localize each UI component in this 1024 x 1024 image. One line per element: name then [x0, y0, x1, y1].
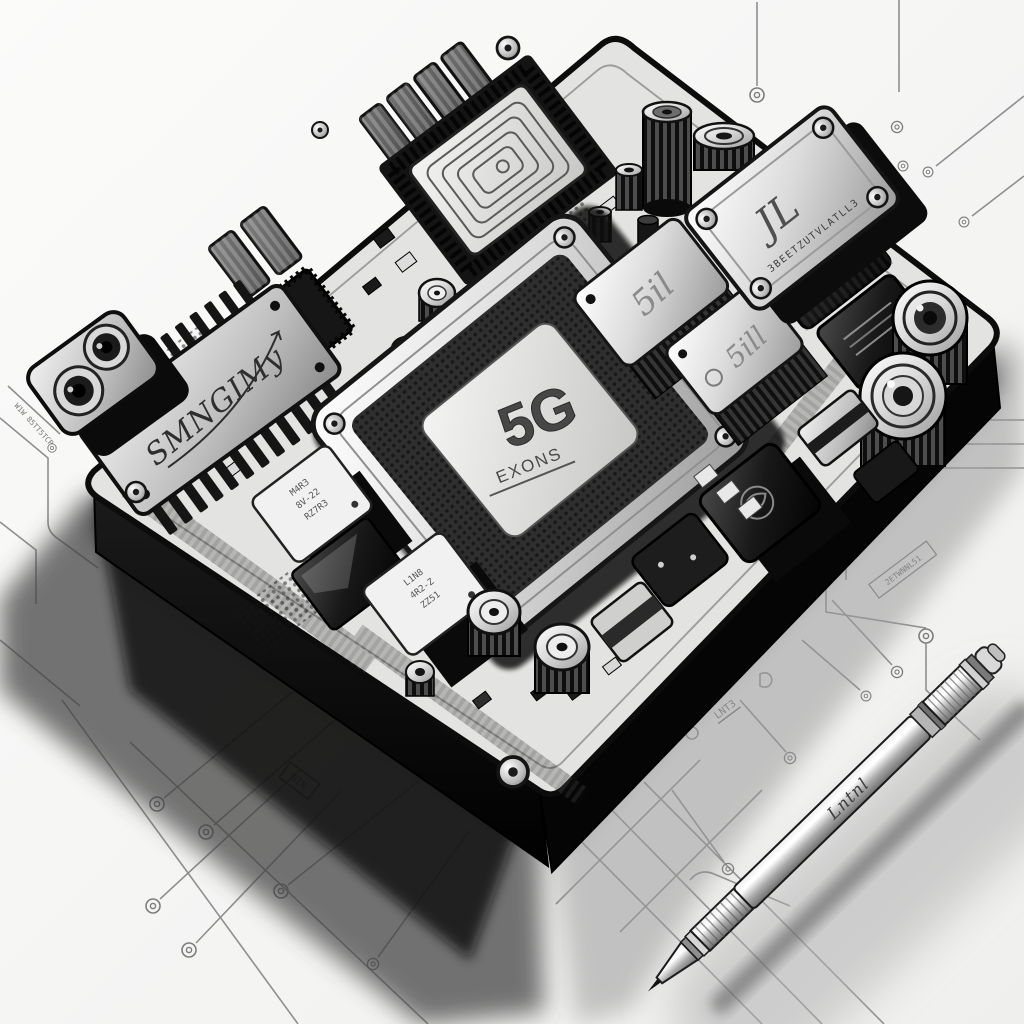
pcb-illustration: LNT3 HIN 2ETWNNL51 W1W 85TT5TCP	[0, 0, 1024, 1024]
board-screw	[498, 757, 528, 787]
capacitor-small	[616, 164, 642, 210]
board-screw	[126, 482, 146, 502]
capacitor-coin	[694, 123, 754, 170]
board-screw	[312, 122, 328, 138]
board-screw	[497, 37, 519, 59]
illustration-canvas: LNT3 HIN 2ETWNNL51 W1W 85TT5TCP	[0, 0, 1024, 1024]
capacitor-bottom	[535, 624, 589, 693]
capacitor-bottom	[468, 590, 520, 656]
capacitor-small	[406, 661, 434, 696]
capacitor-tall	[643, 102, 691, 217]
